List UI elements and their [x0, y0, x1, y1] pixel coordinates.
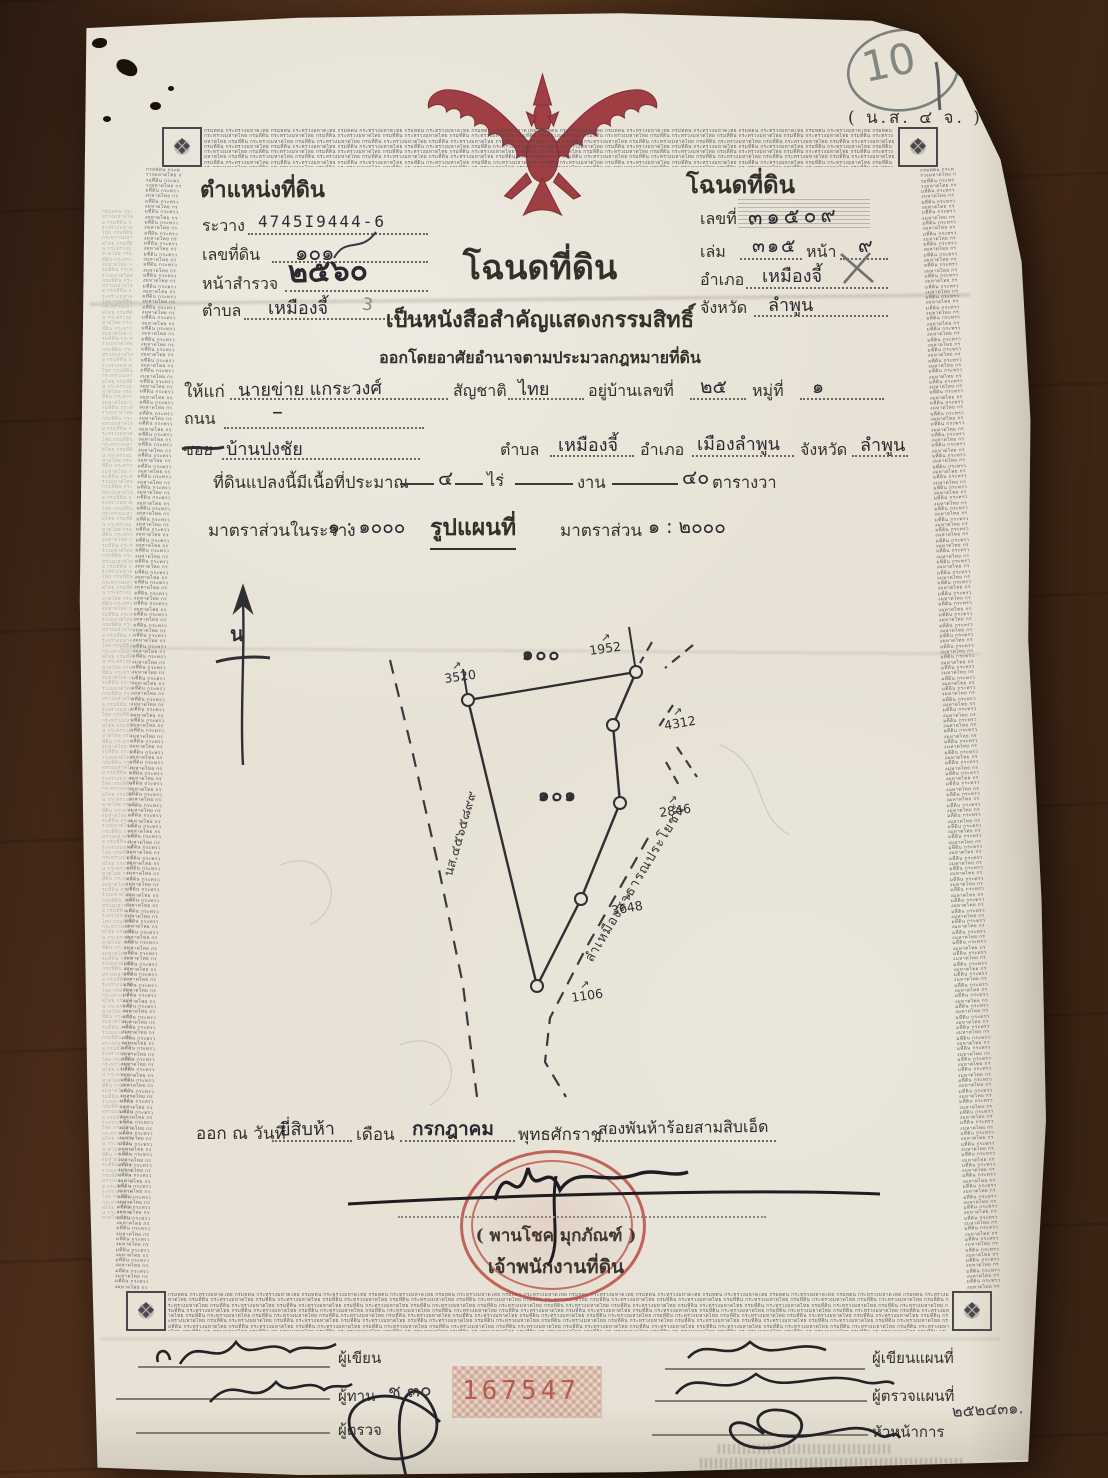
svg-text:↗: ↗ [580, 978, 589, 991]
left-signatures [140, 1326, 500, 1478]
border-ornament-icon: ❖ [162, 127, 202, 167]
field-underline [272, 1140, 352, 1142]
road-value: – [272, 400, 283, 425]
marker-arrows: ↗ ↗ ↗ ↗ ↗ ↗ [452, 631, 682, 991]
area-wa-label: ตารางวา [712, 470, 777, 496]
field-underline [400, 1140, 515, 1142]
area-ngan-label: งาน [577, 470, 606, 496]
cadastral-map: น ๑๐๐ ๑๐๑ 3520 1952 4312 2846 3648 1106 … [160, 565, 920, 1115]
faded-stamp-text [718, 1444, 890, 1454]
faded-stamp-text [700, 1458, 962, 1469]
issue-day: ยี่สิบห้า [280, 1114, 335, 1144]
deed-number-label: เลขที่ [700, 207, 737, 232]
field-underline [230, 398, 448, 400]
right-signatures [668, 1330, 928, 1460]
deed-subtitle: เป็นหนังสือสำคัญแสดงกรรมสิทธิ์ [340, 302, 740, 337]
serial-number: 167547 [462, 1376, 580, 1406]
canal-label: ลำเหมืองสาธารณประโยชน์ [581, 802, 688, 965]
adjacent-parcel-number: ๑๐๐ [522, 644, 561, 665]
border-ornament-icon: ❖ [898, 127, 938, 167]
border-microtext-top: กรมที่ดิน กระทรวงมหาดไทย กรมที่ดิน กระทร… [204, 129, 896, 167]
torn-edge-shading [968, 20, 1046, 1460]
survey-marker-numbers: 3520 1952 4312 2846 3648 1106 [443, 639, 697, 1005]
ink-blob [114, 57, 140, 79]
rawang-label: ระวาง [202, 214, 245, 239]
field-underline [852, 455, 908, 457]
area-rai-value: ๔ [438, 462, 453, 494]
border-ornament-icon: ❖ [126, 1291, 166, 1331]
field-underline [800, 398, 884, 400]
registrar-title: เจ้าพนักงานที่ดิน [440, 1252, 672, 1282]
field-underline [508, 398, 584, 400]
position-block-title: ตำแหน่งที่ดิน [200, 172, 325, 207]
field-underline [754, 315, 888, 317]
tambon-label: ตำบล [500, 438, 539, 463]
issue-month-label: เดือน [356, 1121, 395, 1148]
scale-right-value: ๑ : ๒๐๐๐ [648, 512, 726, 542]
ink-blob [150, 102, 161, 110]
field-underline [692, 455, 794, 457]
issue-era-label: พุทธศักราช [518, 1121, 602, 1148]
boundary-dashed-topright [640, 642, 693, 668]
field-underline [224, 427, 424, 429]
pencil-x-mark [836, 250, 878, 286]
title-deed-paper: 10 ( น.ส. ๔ จ. ) ❖ ❖ ❖ ❖ กรมที่ดิน กระทร… [0, 0, 1108, 1478]
soi-strikethrough [180, 440, 226, 456]
field-underline [594, 1140, 776, 1142]
svg-text:↗: ↗ [673, 705, 682, 718]
vertex-markers [462, 666, 642, 992]
moo-label: หมู่ที่ [752, 379, 784, 404]
deed-number-value: ๓๑๕๐๙ [747, 198, 840, 234]
svg-text:↗: ↗ [601, 631, 610, 644]
north-label: น [230, 622, 244, 646]
amphoe-label: อำเภอ [640, 438, 684, 463]
issue-year: สองพันห้าร้อยสามสิบเอ็ด [598, 1115, 769, 1142]
registrar-name: ( พานโชค มุกภัณฑ์ ) [436, 1222, 676, 1249]
tambon-label-left: ตำบล [202, 299, 241, 324]
scale-right-label: มาตราส่วน [560, 517, 642, 544]
area-dash [515, 483, 573, 485]
deed-subtitle2: ออกโดยอาศัยอำนาจตามประมวลกฎหมายที่ดิน [340, 346, 740, 371]
area-dash [400, 483, 434, 485]
ink-blob [168, 86, 174, 91]
field-underline [740, 258, 802, 260]
area-wa-value: ๔๐ [682, 461, 709, 493]
volume-value: ๓๑๕ [752, 231, 797, 261]
photo-background: 10 ( น.ส. ๔ จ. ) ❖ ❖ ❖ ❖ กรมที่ดิน กระทร… [0, 0, 1108, 1478]
paper-fibers [280, 745, 790, 1105]
area-rai-label: ไร่ [487, 468, 504, 494]
field-underline [690, 398, 746, 400]
amphoe-value-right: เหมืองจี้ [762, 261, 822, 290]
left-handwritten-note: ช ๓๐ [387, 1375, 433, 1408]
road-label: ถนน [184, 407, 216, 432]
survey-page-label: หน้าสำรวจ [202, 272, 278, 297]
border-microtext-left-outer: กรมที่ดิน กระทรวงมหาดไทย กรมที่ดิน กระทร… [102, 210, 134, 1220]
north-arrow-icon [216, 587, 270, 765]
parcel-number-label: เลขที่ดิน [202, 243, 260, 268]
ink-blob [92, 38, 107, 48]
ink-blob [103, 116, 111, 122]
left-boundary-annotation: นส.๔๕๖๕๘๙๙ [441, 790, 480, 879]
area-prefix: ที่ดินแปลงนี้มีเนื้อที่ประมาณ [213, 470, 409, 496]
map-section-title: รูปแผนที่ [430, 510, 516, 550]
boundary-dashed-left [390, 660, 477, 1097]
parcel-number: ๑๐๑ [538, 785, 578, 806]
area-dash [612, 483, 678, 485]
field-underline [222, 458, 420, 460]
seal-dotted-line [398, 1216, 766, 1218]
nationality-label: สัญชาติ [453, 379, 507, 404]
province-label: จังหวัด [800, 438, 847, 463]
paper-shadow: 10 ( น.ส. ๔ จ. ) ❖ ❖ ❖ ❖ กรมที่ดิน กระทร… [0, 0, 1108, 1478]
issue-prefix: ออก ณ วันที่ [196, 1120, 286, 1147]
house-number-label: อยู่บ้านเลขที่ [588, 379, 674, 404]
svg-text:↗: ↗ [452, 659, 461, 672]
area-dash [455, 483, 483, 485]
amphoe-value: เมืองลำพูน [697, 429, 780, 458]
deed-title: โฉนดที่ดิน [340, 240, 740, 294]
grant-to-label: ให้แก่ [184, 378, 225, 405]
field-underline [746, 287, 888, 289]
scale-left-value: ๑ : ๑๐๐๐ [328, 512, 405, 542]
field-underline [550, 455, 634, 457]
